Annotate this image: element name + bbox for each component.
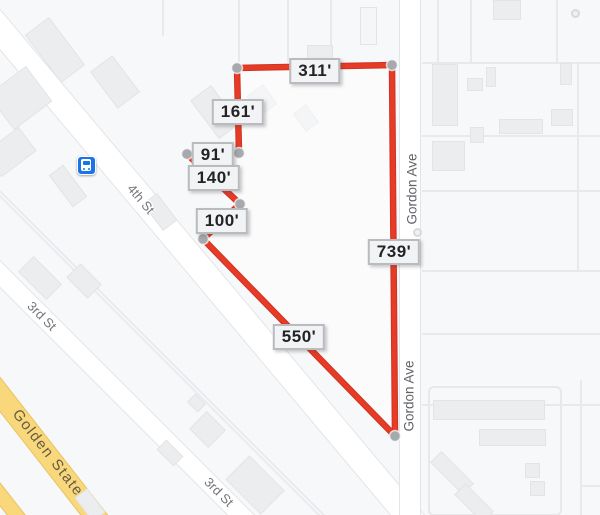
measurement-label: 140' [188,165,240,191]
measurement-vertex-handle[interactable] [234,148,245,159]
bus-stop-icon[interactable] [77,156,96,175]
street-label-gordon-ave: Gordon Ave [405,153,420,224]
measurement-vertex-handle[interactable] [232,63,243,74]
measurement-label: 161' [212,99,264,125]
bus-window [83,161,90,165]
measurement-vertex-handle[interactable] [390,431,401,442]
map-canvas[interactable]: 4th St3rd St3rd StGordon AveGordon AveGo… [0,0,600,515]
bus-glyph [81,159,91,171]
measurement-label: 550' [273,324,325,350]
measurement-label: 739' [368,239,420,265]
measurement-label: 100' [196,208,248,234]
measurement-vertex-handle[interactable] [198,234,209,245]
measurement-label: 311' [289,58,340,84]
measurement-vertex-handle[interactable] [387,60,398,71]
street-label-gordon-ave: Gordon Ave [402,360,417,431]
